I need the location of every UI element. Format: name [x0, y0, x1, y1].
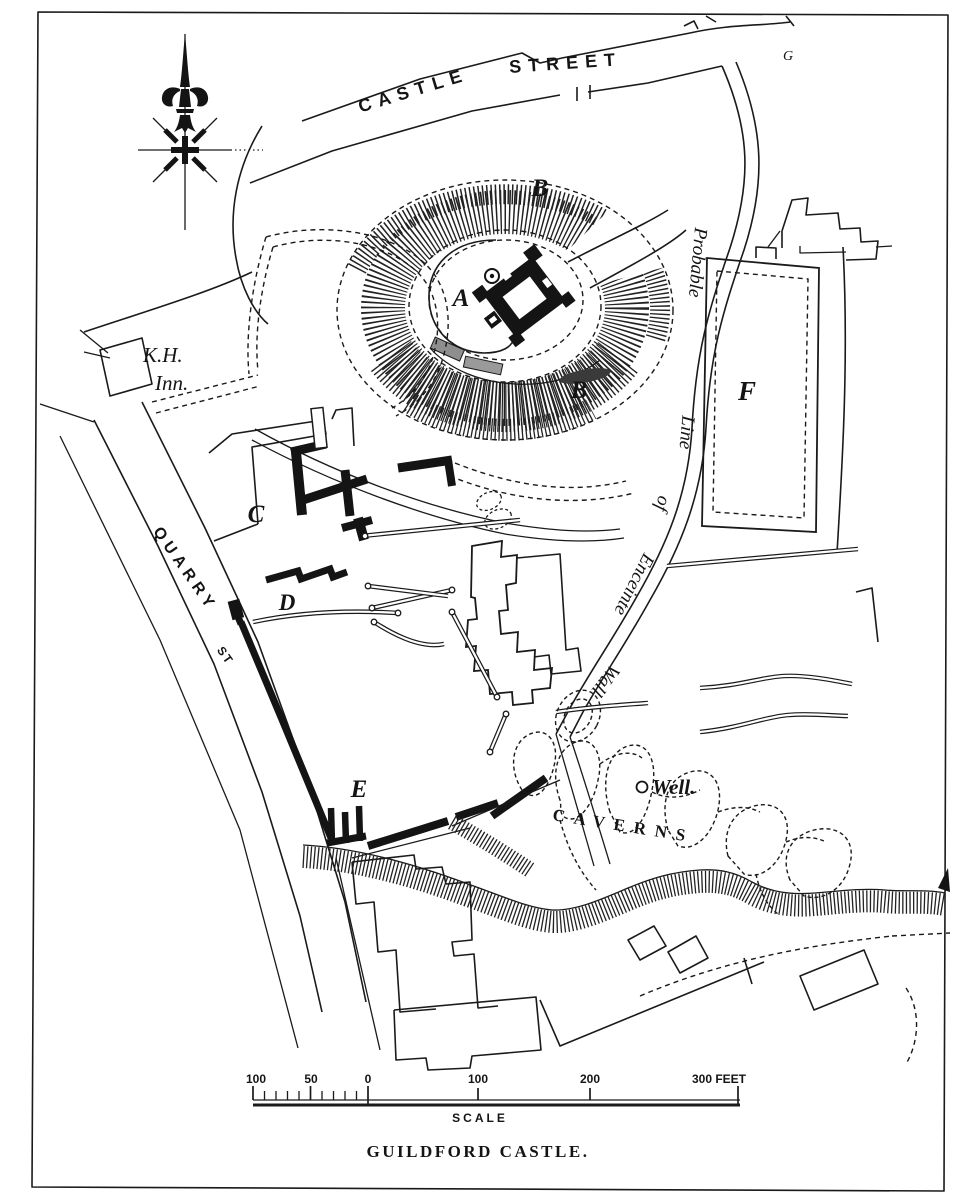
cliff-corner — [938, 868, 950, 892]
guildford-castle-map: CASTLE STREET QUARRY ST A B B C D E F G … — [0, 0, 957, 1200]
compass-ray-bold — [193, 130, 205, 142]
enclosure-gate-tab — [756, 247, 776, 259]
wall-end-bulb — [371, 619, 377, 625]
castle-street-label: STREET — [509, 49, 623, 77]
enceinte-word-line: Line — [675, 414, 699, 450]
keep-turret — [472, 285, 490, 303]
wall-trace — [490, 714, 506, 752]
keep-turret-dot — [490, 274, 494, 278]
keep-turret — [523, 244, 543, 264]
street-edge — [690, 22, 790, 33]
wall-outline — [452, 780, 560, 826]
building-outline — [394, 997, 541, 1070]
label-corner-g: G — [783, 49, 793, 64]
yard-outline — [332, 408, 354, 446]
castle-motte — [337, 180, 700, 440]
wall-end-bulb — [503, 711, 509, 717]
building-outline — [352, 862, 436, 1012]
scale-title: SCALE — [452, 1111, 508, 1125]
street-curve — [233, 126, 268, 324]
compass-ray-bold — [165, 158, 177, 170]
wall-end-bulb — [362, 533, 368, 539]
scale-label-50: 50 — [304, 1072, 318, 1086]
caverns-label: CAVERNS — [551, 805, 695, 846]
ruin-wall — [448, 460, 452, 486]
wall-end-bulb — [449, 587, 455, 593]
map-caption: GUILDFORD CASTLE. — [367, 1142, 590, 1161]
ruin-wall — [345, 470, 350, 516]
yard-line — [876, 246, 892, 247]
street-edge — [40, 404, 94, 422]
compass-ray-bold — [165, 130, 177, 142]
enclosure-f — [702, 198, 892, 642]
label-enclosure-f: F — [737, 376, 756, 406]
building-outline — [782, 198, 878, 260]
courtyard-outlines — [209, 407, 354, 541]
building-outline — [628, 926, 666, 960]
cavern-tendril — [718, 808, 760, 813]
frontage-line — [336, 858, 380, 1050]
inn-label-line2: Inn. — [154, 371, 188, 395]
map-page: CASTLE STREET QUARRY ST A B B C D E F G … — [0, 0, 957, 1200]
cavern-outline — [726, 805, 787, 876]
wall-end-bulb — [487, 749, 493, 755]
yard-line — [768, 231, 780, 247]
street-corner-hook — [706, 16, 716, 22]
ruin-wall — [331, 808, 332, 844]
fleur-de-lis-north-icon — [162, 33, 208, 133]
wall-end-bulb — [449, 609, 455, 615]
building-outline — [466, 541, 552, 705]
quarry-street-abbrev: ST — [214, 644, 237, 668]
building-outline — [668, 936, 708, 973]
inn-label-line1: K.H. — [142, 343, 183, 367]
compass-ray-bold — [193, 158, 205, 170]
dashed-enclosure — [257, 247, 273, 371]
central-building — [466, 541, 581, 705]
inn-building — [80, 330, 152, 396]
dashed-oval-feature — [474, 488, 505, 514]
wall-trace — [362, 520, 520, 536]
well-label: Well. — [652, 775, 695, 799]
scale-label-100-left: 100 — [246, 1072, 266, 1086]
wall-end-bulb — [494, 694, 500, 700]
street-edge — [94, 420, 322, 1012]
label-bailey-b-upper: B — [531, 175, 549, 202]
dashed-path — [450, 476, 634, 500]
ruin-wall — [296, 452, 302, 515]
town-wall-long — [241, 622, 331, 838]
street-edge — [250, 95, 560, 183]
ruin-wall — [236, 612, 241, 624]
building-outline — [800, 950, 878, 1010]
ruin-wall-stepped — [266, 569, 347, 580]
wall-trace — [374, 622, 444, 645]
building-outline — [446, 882, 498, 1008]
dashed-footpath — [892, 933, 950, 936]
enceinte-word-enceinte: Enceinte — [609, 549, 658, 619]
street-corner-hook — [786, 16, 794, 26]
wall-trace — [368, 586, 448, 596]
dashed-footpath — [906, 988, 917, 1064]
scale-bar: 100 50 0 100 200 300 FEET SCALE — [246, 1072, 747, 1125]
street-corner-hook — [684, 21, 698, 29]
ruin-wall — [359, 806, 360, 841]
compass-rose — [138, 33, 263, 230]
compass-star — [138, 118, 263, 182]
road-line — [837, 247, 845, 553]
scale-label-300-feet: 300 FEET — [692, 1072, 747, 1086]
cavern-tendril — [756, 874, 778, 914]
dashed-loop — [558, 694, 598, 738]
building-outline — [800, 246, 846, 253]
cavern-tendril — [600, 753, 642, 764]
enclosure-outline — [702, 258, 819, 532]
street-edge — [84, 352, 110, 358]
scale-label-100: 100 — [468, 1072, 488, 1086]
ruin-wall — [398, 460, 452, 468]
scale-label-200: 200 — [580, 1072, 600, 1086]
inn-yard-line — [80, 330, 108, 353]
dashed-footpath — [640, 936, 892, 996]
lane-edge — [570, 737, 610, 864]
wall-end-bulb — [369, 605, 375, 611]
label-keep-a: A — [451, 285, 470, 312]
ruin-wall — [342, 520, 372, 528]
path-edge — [252, 440, 624, 541]
street-edge — [540, 962, 764, 1046]
wall-end-bulb — [395, 610, 401, 616]
cavern-tendril — [786, 838, 826, 843]
castle-street-label: CASTLE — [356, 64, 471, 116]
street-edge — [84, 272, 252, 332]
scale-label-0: 0 — [365, 1072, 372, 1086]
map-labels: CASTLE STREET QUARRY ST A B B C D E F G … — [142, 49, 793, 846]
wall-trace — [667, 549, 858, 566]
ruin-wall — [368, 821, 448, 846]
wall-line — [744, 958, 752, 984]
label-bailey-b-lower: B — [570, 377, 588, 404]
enceinte-word-of: of — [649, 494, 674, 517]
scale-major-ticks — [253, 1086, 738, 1105]
label-ruins-d: D — [278, 590, 296, 615]
yard-corner — [856, 588, 878, 642]
ruin-wall — [345, 812, 346, 843]
dashed-path — [455, 463, 626, 487]
label-ruins-e: E — [350, 776, 368, 803]
label-ruins-c: C — [248, 501, 265, 528]
wall-end-bulb — [365, 583, 371, 589]
well-marker — [637, 782, 648, 793]
